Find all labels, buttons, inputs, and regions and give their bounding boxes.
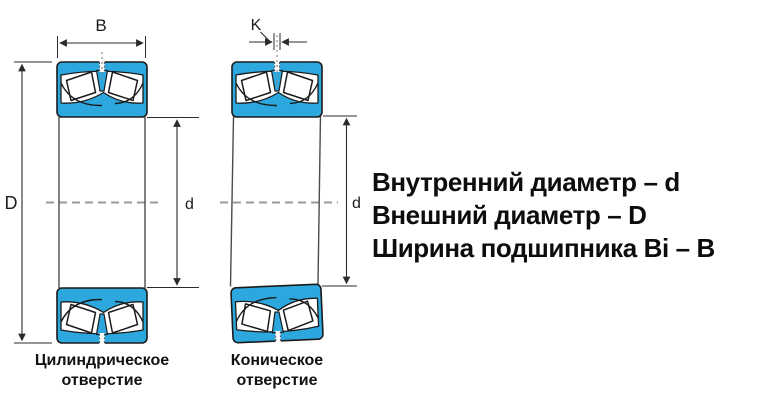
b-dimension-label: B — [95, 16, 106, 35]
left-caption-line2: отверстие — [17, 371, 187, 391]
right-bottom-section — [231, 284, 323, 344]
right-bore-lines — [231, 114, 321, 287]
left-top-section — [57, 61, 147, 117]
left-bearing-caption: Цилиндрическое отверстие — [17, 351, 187, 390]
right-caption-line2: отверстие — [192, 371, 362, 391]
left-caption-line1: Цилиндрическое — [17, 351, 187, 371]
bore-diameter-label-right: d — [352, 195, 361, 212]
dimension-legend: Внутренний диаметр – d Внешний диаметр –… — [372, 166, 715, 265]
conical-bore-bearing: K d — [220, 17, 361, 344]
right-bearing-caption: Коническое отверстие — [192, 351, 362, 390]
legend-bearing-width: Ширина подшипника Bi – B — [372, 232, 715, 265]
legend-inner-diameter: Внутренний диаметр – d — [372, 166, 715, 199]
dimension-D: D — [5, 62, 53, 343]
left-bottom-section — [57, 288, 147, 344]
dimension-K: K — [249, 17, 307, 50]
right-caption-line1: Коническое — [192, 351, 362, 371]
bearing-dimensions-figure: B D d — [0, 0, 762, 408]
outer-diameter-label: D — [5, 193, 18, 213]
cylindrical-bore-bearing: B D d — [5, 16, 200, 344]
right-top-section — [232, 61, 322, 117]
bore-diameter-label-left: d — [185, 196, 194, 213]
dimension-d-right: d — [322, 116, 361, 286]
k-dimension-label: K — [251, 17, 262, 34]
dimension-B: B — [58, 16, 146, 58]
legend-outer-diameter: Внешний диаметр – D — [372, 199, 715, 232]
